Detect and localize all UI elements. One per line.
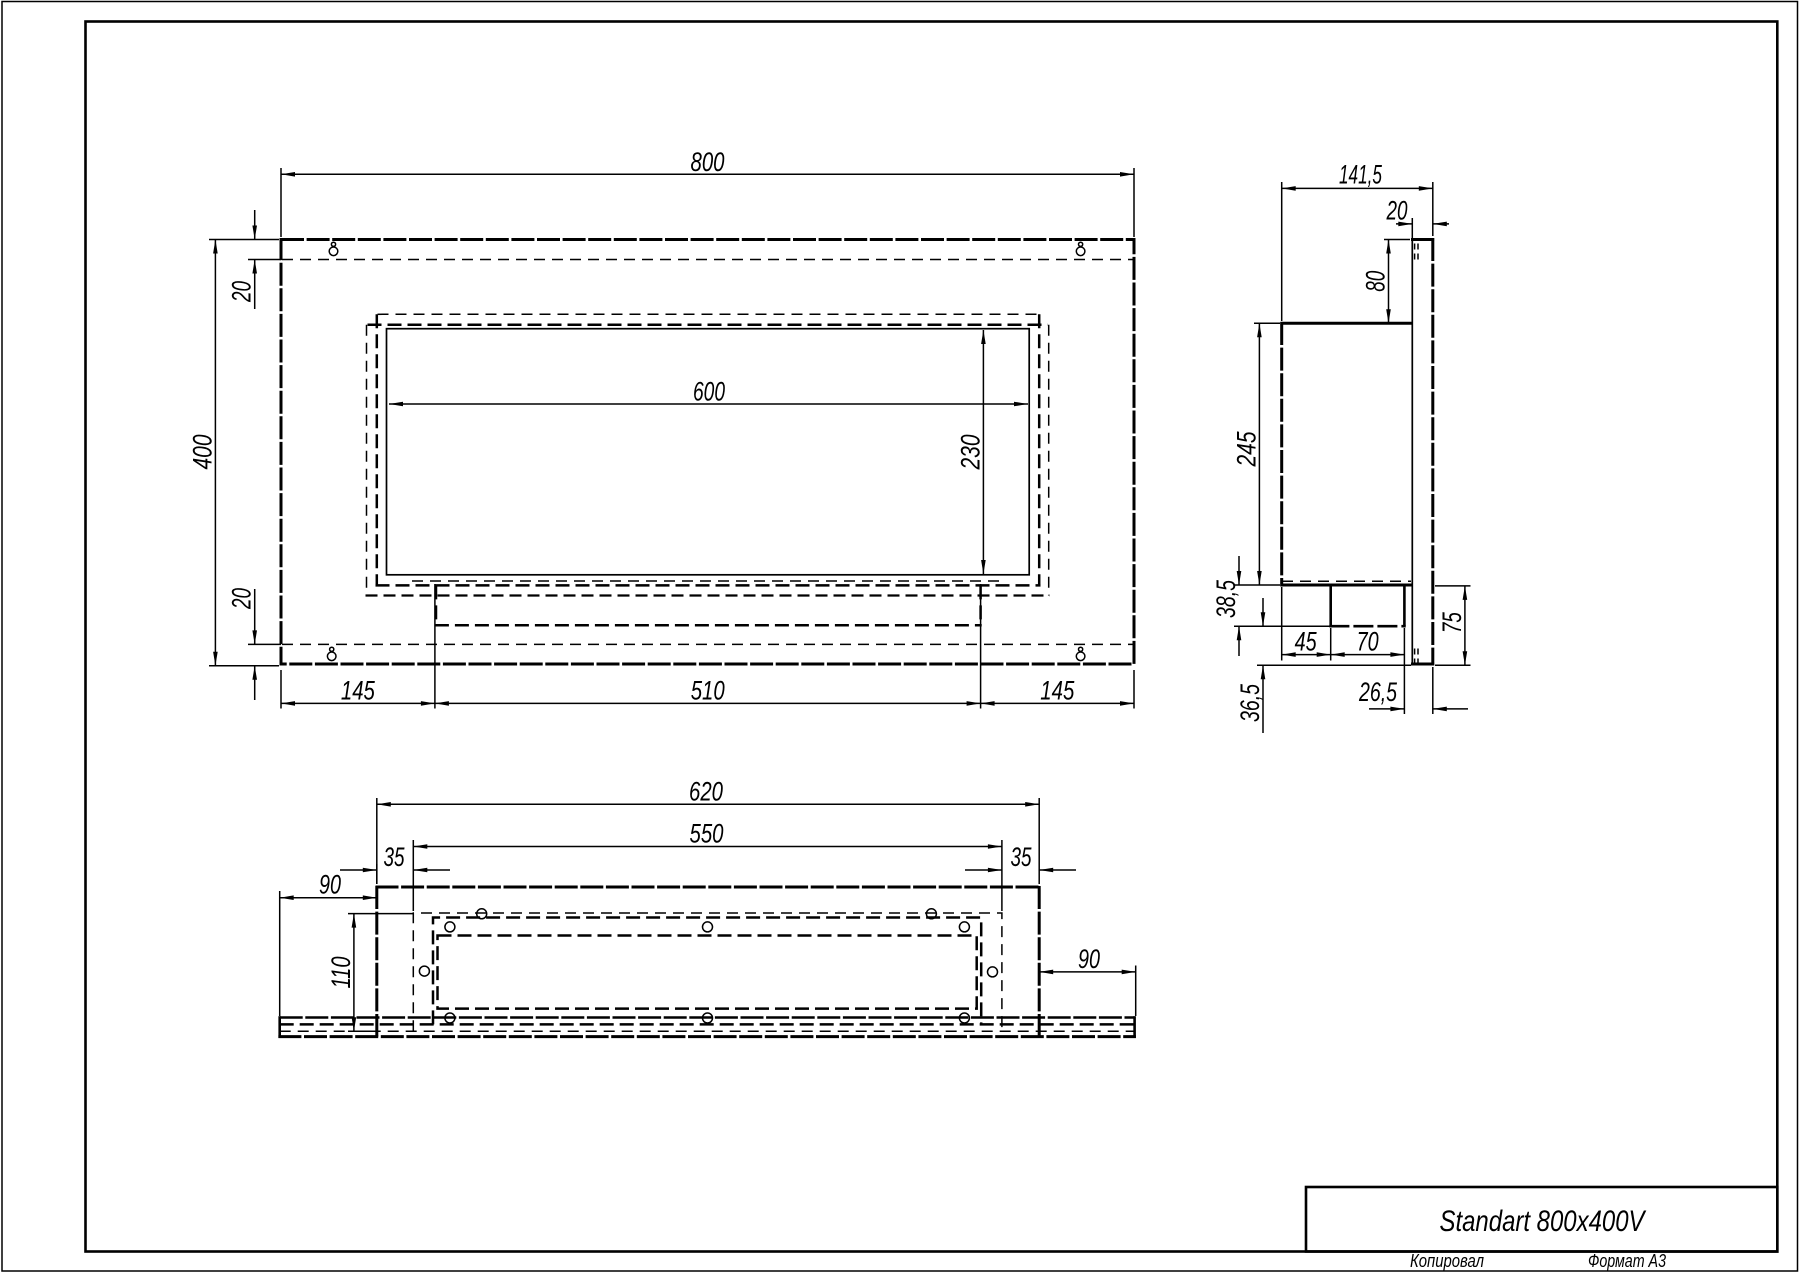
- svg-text:45: 45: [1295, 627, 1318, 657]
- svg-text:800: 800: [691, 147, 725, 177]
- svg-text:141,5: 141,5: [1339, 160, 1383, 190]
- svg-text:230: 230: [955, 435, 985, 471]
- svg-text:80: 80: [1361, 271, 1391, 292]
- svg-text:110: 110: [326, 957, 356, 989]
- svg-text:245: 245: [1231, 431, 1261, 468]
- svg-text:90: 90: [1078, 944, 1100, 974]
- svg-text:35: 35: [384, 842, 406, 872]
- svg-text:600: 600: [693, 377, 725, 407]
- svg-text:Standart 800x400V: Standart 800x400V: [1440, 1205, 1647, 1238]
- svg-text:Копировал: Копировал: [1410, 1251, 1484, 1271]
- svg-text:510: 510: [691, 676, 725, 706]
- svg-text:Формат А3: Формат А3: [1588, 1251, 1666, 1271]
- svg-text:20: 20: [1386, 196, 1408, 226]
- svg-text:70: 70: [1357, 627, 1379, 657]
- svg-text:400: 400: [187, 435, 217, 470]
- svg-text:35: 35: [1011, 842, 1033, 872]
- svg-text:26,5: 26,5: [1358, 677, 1397, 707]
- svg-text:620: 620: [689, 776, 723, 806]
- svg-text:20: 20: [227, 281, 257, 303]
- svg-text:20: 20: [227, 588, 257, 610]
- svg-text:145: 145: [1040, 676, 1075, 706]
- svg-text:145: 145: [341, 676, 376, 706]
- svg-text:36,5: 36,5: [1235, 683, 1265, 722]
- svg-text:75: 75: [1437, 611, 1467, 633]
- svg-text:38,5: 38,5: [1211, 579, 1241, 618]
- svg-text:90: 90: [319, 870, 341, 900]
- svg-text:550: 550: [690, 819, 724, 849]
